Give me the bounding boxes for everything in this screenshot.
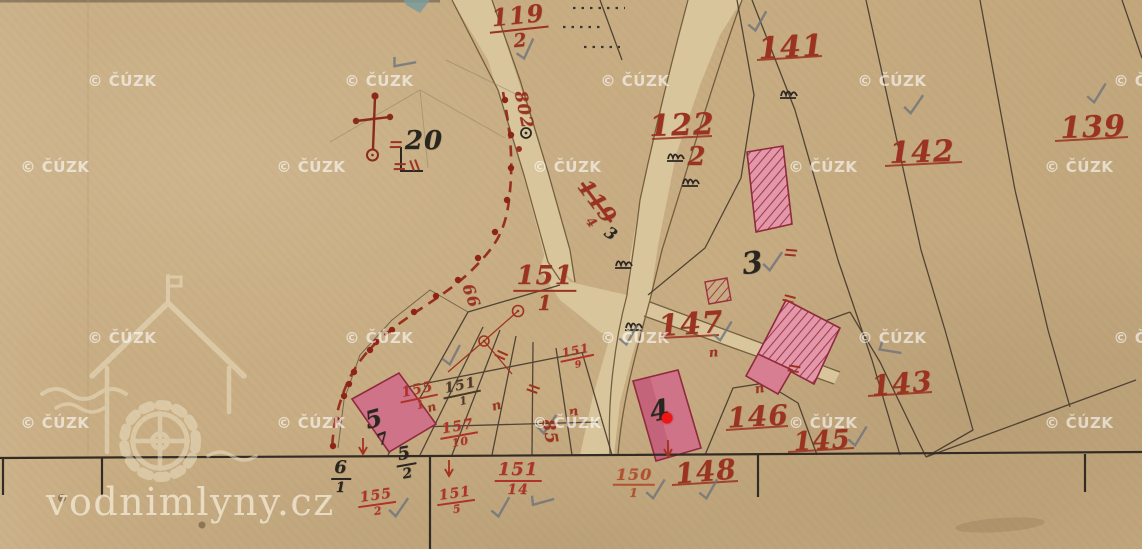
red-tick-marks	[390, 140, 801, 395]
site-watermark-text: vodnimlyny.cz	[46, 480, 335, 524]
building-hatched-1	[747, 146, 792, 232]
map-artwork	[0, 0, 1142, 549]
survey-traverse	[448, 306, 524, 375]
building-outline-small	[705, 278, 731, 304]
building-5	[352, 373, 436, 452]
cross-symbol	[353, 92, 393, 160]
parcel-lines-group	[338, 0, 1142, 457]
mill-location-marker[interactable]	[662, 413, 673, 424]
map-canvas[interactable]: 2011921411222142139119438021511314766143…	[0, 0, 1142, 549]
pencil-smudge	[404, 0, 430, 13]
vodnimlyny-logo	[42, 276, 256, 477]
